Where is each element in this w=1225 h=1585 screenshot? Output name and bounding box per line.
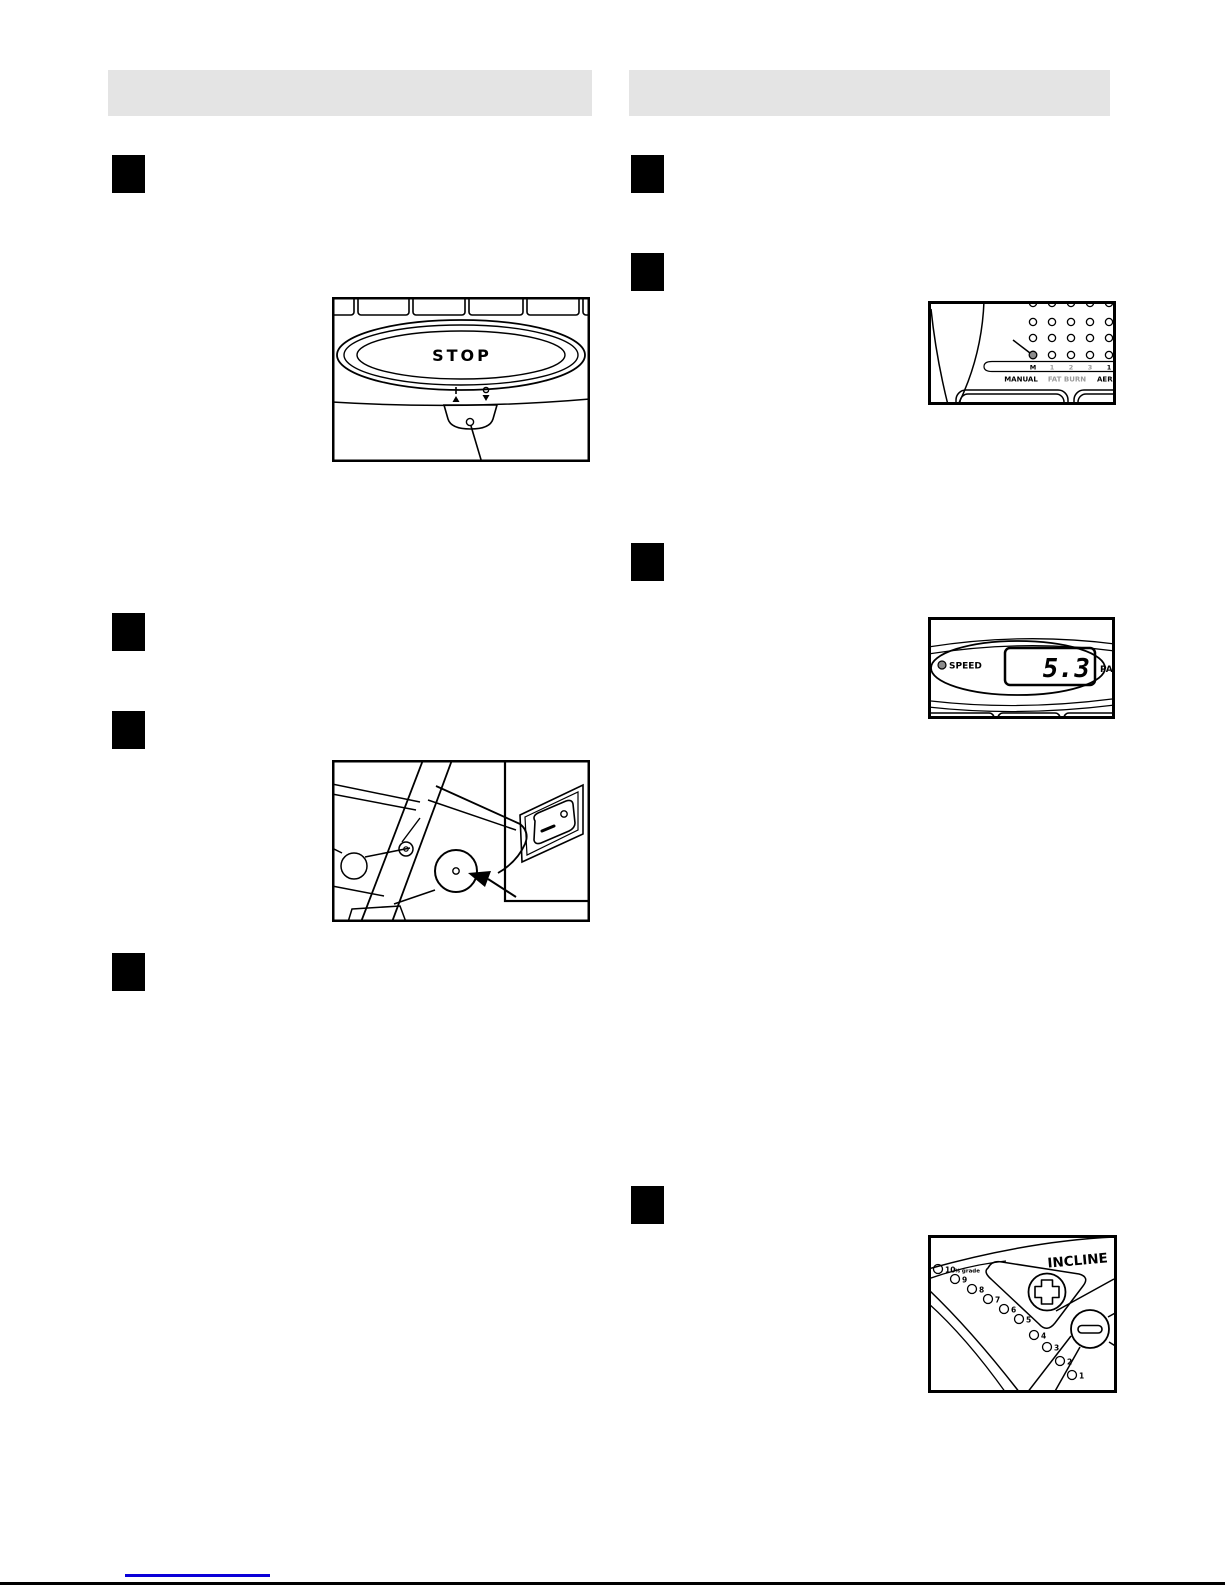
key-cord-line (471, 426, 482, 462)
incline-led-label: 7 (995, 1296, 1000, 1305)
incline-up-button[interactable] (1029, 1274, 1066, 1311)
switch-on-mark (542, 826, 554, 831)
step-marker (112, 155, 145, 193)
manual-page: STOP (0, 0, 1225, 1585)
program-col-label: 1 (1050, 364, 1055, 372)
led-arc-band-edge (928, 1303, 1006, 1393)
incline-led-label-suffix: % grade (955, 1269, 981, 1275)
incline-led-label: 5 (1026, 1316, 1031, 1325)
selected-dot-pointer (1013, 340, 1030, 353)
stop-button-label: STOP (432, 346, 492, 365)
step-marker (631, 543, 664, 581)
program-name-labels: MANUAL FAT BURN AER (1004, 376, 1113, 384)
incline-led-label: 8 (979, 1286, 984, 1295)
treadmill-base-drawing (332, 760, 527, 922)
program-name-fat-burn: FAT BURN (1048, 376, 1086, 384)
incline-led-label: 6 (1011, 1306, 1016, 1315)
figure-program-display: M 1 2 3 1 MANUAL FAT BURN AER (928, 301, 1116, 405)
step-marker (112, 613, 145, 651)
program-number-labels: M 1 2 3 1 (1030, 364, 1112, 372)
console-edge-curve (931, 309, 948, 405)
step-marker (631, 253, 664, 291)
incline-title: INCLINE (1047, 1250, 1109, 1271)
program-col-label: 1 (1107, 364, 1112, 372)
pace-label-partial: PA (1100, 665, 1113, 675)
key-clip-dock (444, 405, 497, 429)
incline-led-label: 1 (1079, 1372, 1084, 1381)
program-col-label: M (1030, 364, 1036, 372)
section-header-right (629, 70, 1110, 116)
program-name-aerobic-partial: AER (1097, 376, 1113, 384)
figure-power-switch (332, 760, 590, 922)
plus-icon (1035, 1280, 1059, 1304)
console-top-buttons (332, 297, 590, 315)
step-marker (631, 155, 664, 193)
figure-stop-console: STOP (332, 297, 590, 462)
incline-led-label: 3 (1054, 1344, 1059, 1353)
step-marker (631, 1186, 664, 1224)
speed-value: 5.3 (1040, 654, 1092, 684)
minus-icon (1078, 1326, 1102, 1334)
console-molding-line (931, 699, 1112, 706)
incline-led-label: 4 (1041, 1332, 1046, 1341)
switch-off-mark (561, 811, 567, 817)
footer-link[interactable] (125, 1574, 270, 1577)
speed-label: SPEED (949, 662, 982, 672)
incline-up-pod (986, 1262, 1086, 1329)
section-header-left (108, 70, 592, 116)
figure-speed-display: SPEED 5.3 PA (928, 617, 1115, 719)
power-switch-inset (505, 760, 590, 901)
switch-pointer-arrow (468, 871, 516, 897)
figure-incline-controls: INCLINE (928, 1235, 1117, 1393)
rocker-switch-frame (520, 785, 583, 862)
program-col-label: 3 (1088, 364, 1093, 372)
stop-button-oval: STOP (337, 320, 585, 390)
program-name-manual: MANUAL (1004, 376, 1038, 384)
step-marker (112, 953, 145, 991)
program-col-label: 2 (1069, 364, 1074, 372)
incline-down-button[interactable] (1071, 1310, 1109, 1348)
speed-led-indicator (938, 661, 946, 669)
incline-led-label: 9 (962, 1276, 967, 1285)
profile-dot-matrix (1013, 301, 1113, 359)
step-marker (112, 711, 145, 749)
rocker-switch-body (534, 800, 575, 843)
incline-led-label: 2 (1067, 1358, 1072, 1367)
